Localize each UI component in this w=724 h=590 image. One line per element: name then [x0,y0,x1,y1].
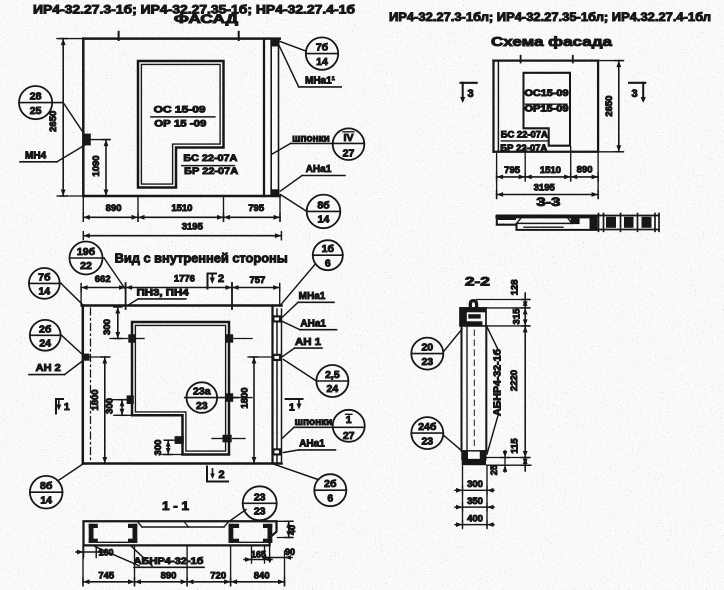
svg-text:23: 23 [196,400,208,412]
svg-text:1: 1 [289,402,295,414]
svg-text:27: 27 [343,430,355,442]
svg-text:IV: IV [344,132,354,144]
svg-text:27: 27 [343,147,355,159]
svg-text:160: 160 [98,547,113,557]
svg-text:8б: 8б [317,199,330,211]
svg-text:300: 300 [105,398,116,414]
svg-text:Схема фасада: Схема фасада [491,34,613,49]
svg-text:28: 28 [30,91,42,103]
svg-text:662: 662 [95,274,111,285]
svg-text:3195: 3195 [182,222,204,233]
svg-text:23: 23 [421,435,433,447]
svg-text:1: 1 [346,414,352,426]
svg-text:24б: 24б [418,421,437,433]
svg-text:БР 22-07А: БР 22-07А [500,143,548,153]
svg-text:шпонки: шпонки [295,417,333,428]
svg-text:3195: 3195 [534,183,556,194]
svg-text:6: 6 [325,257,331,269]
svg-text:20: 20 [421,342,433,354]
svg-text:АНа1: АНа1 [300,318,326,329]
svg-text:90: 90 [285,547,295,557]
svg-text:890: 890 [106,203,122,214]
svg-text:300: 300 [102,319,113,335]
svg-text:19б: 19б [77,246,96,258]
svg-text:14: 14 [318,214,330,226]
svg-text:2,5: 2,5 [325,369,340,381]
svg-text:1800: 1800 [239,387,250,408]
svg-text:1800: 1800 [90,389,101,410]
svg-text:890: 890 [577,164,593,175]
svg-text:7б: 7б [38,271,51,283]
svg-text:2б: 2б [324,478,337,490]
svg-text:МНа1¹: МНа1¹ [305,75,336,86]
svg-text:1510: 1510 [540,165,561,176]
svg-text:8б: 8б [40,480,53,492]
svg-text:795: 795 [248,203,265,214]
svg-text:40: 40 [287,525,297,535]
svg-text:БС 22-07А: БС 22-07А [183,153,237,164]
svg-text:23а: 23а [193,386,211,398]
svg-text:23: 23 [421,356,433,368]
svg-text:3: 3 [467,88,473,100]
svg-text:128: 128 [510,279,521,295]
svg-text:22: 22 [80,260,92,272]
svg-text:14: 14 [316,56,328,68]
svg-text:ИР4-32.27.3-1бл; ИР4-32.27.35-: ИР4-32.27.3-1бл; ИР4-32.27.35-1бл; ИР4.3… [389,10,711,24]
svg-text:ОР15-09: ОР15-09 [525,104,569,114]
svg-text:ОС 15-09: ОС 15-09 [154,105,206,116]
svg-text:1510: 1510 [171,203,192,214]
svg-text:2б: 2б [39,323,52,335]
svg-text:6: 6 [327,492,333,504]
svg-text:300: 300 [467,479,483,490]
svg-text:7б: 7б [316,42,329,54]
svg-text:ОР 15 -09: ОР 15 -09 [154,118,206,129]
svg-text:АНа1: АНа1 [299,439,325,450]
svg-text:3-3: 3-3 [536,195,560,209]
svg-text:14: 14 [40,494,52,506]
svg-text:25: 25 [489,464,500,475]
svg-text:840: 840 [254,571,270,582]
svg-text:720: 720 [210,571,226,582]
svg-text:3: 3 [631,88,637,100]
svg-text:757: 757 [249,275,265,286]
svg-text:1776: 1776 [174,274,195,285]
svg-text:1090: 1090 [91,155,102,176]
svg-text:АНа1: АНа1 [306,164,332,175]
svg-text:350: 350 [467,496,483,507]
svg-text:МНа1: МНа1 [299,291,326,302]
svg-text:23: 23 [254,491,266,503]
svg-text:14: 14 [38,286,50,298]
svg-text:24: 24 [327,383,339,395]
svg-text:АН 1: АН 1 [295,337,321,348]
svg-text:2: 2 [218,273,224,285]
svg-text:АБНР4-32-1б: АБНР4-32-1б [134,556,204,567]
svg-text:ПН3, ПН4: ПН3, ПН4 [137,288,190,299]
svg-text:300: 300 [153,440,164,456]
svg-text:1б: 1б [322,243,335,255]
svg-text:2650: 2650 [604,96,615,117]
svg-text:ФАСАД: ФАСАД [174,14,238,26]
svg-text:БС 22-07А: БС 22-07А [501,129,549,139]
svg-text:115: 115 [510,438,521,454]
svg-text:23: 23 [254,506,266,518]
svg-text:25: 25 [30,105,42,117]
svg-text:БР 22-07А: БР 22-07А [184,166,238,177]
svg-text:400: 400 [467,513,483,524]
svg-text:315: 315 [512,308,523,325]
svg-text:АБНР4-32-1б: АБНР4-32-1б [491,349,503,416]
svg-text:2220: 2220 [509,370,520,391]
svg-text:1 - 1: 1 - 1 [162,499,189,513]
svg-text:ОС15-09: ОС15-09 [525,88,569,98]
svg-text:МН4: МН4 [25,151,47,162]
svg-text:795: 795 [504,165,521,176]
svg-text:745: 745 [98,571,115,582]
svg-text:890: 890 [161,571,177,582]
svg-text:24: 24 [39,338,51,350]
svg-text:2-2: 2-2 [465,275,490,289]
svg-text:2: 2 [218,469,224,481]
svg-text:Вид с внутренней стороны: Вид с внутренней стороны [115,251,288,265]
svg-text:2650: 2650 [48,111,59,132]
svg-text:1: 1 [64,401,70,413]
svg-text:АН 2: АН 2 [36,363,61,374]
